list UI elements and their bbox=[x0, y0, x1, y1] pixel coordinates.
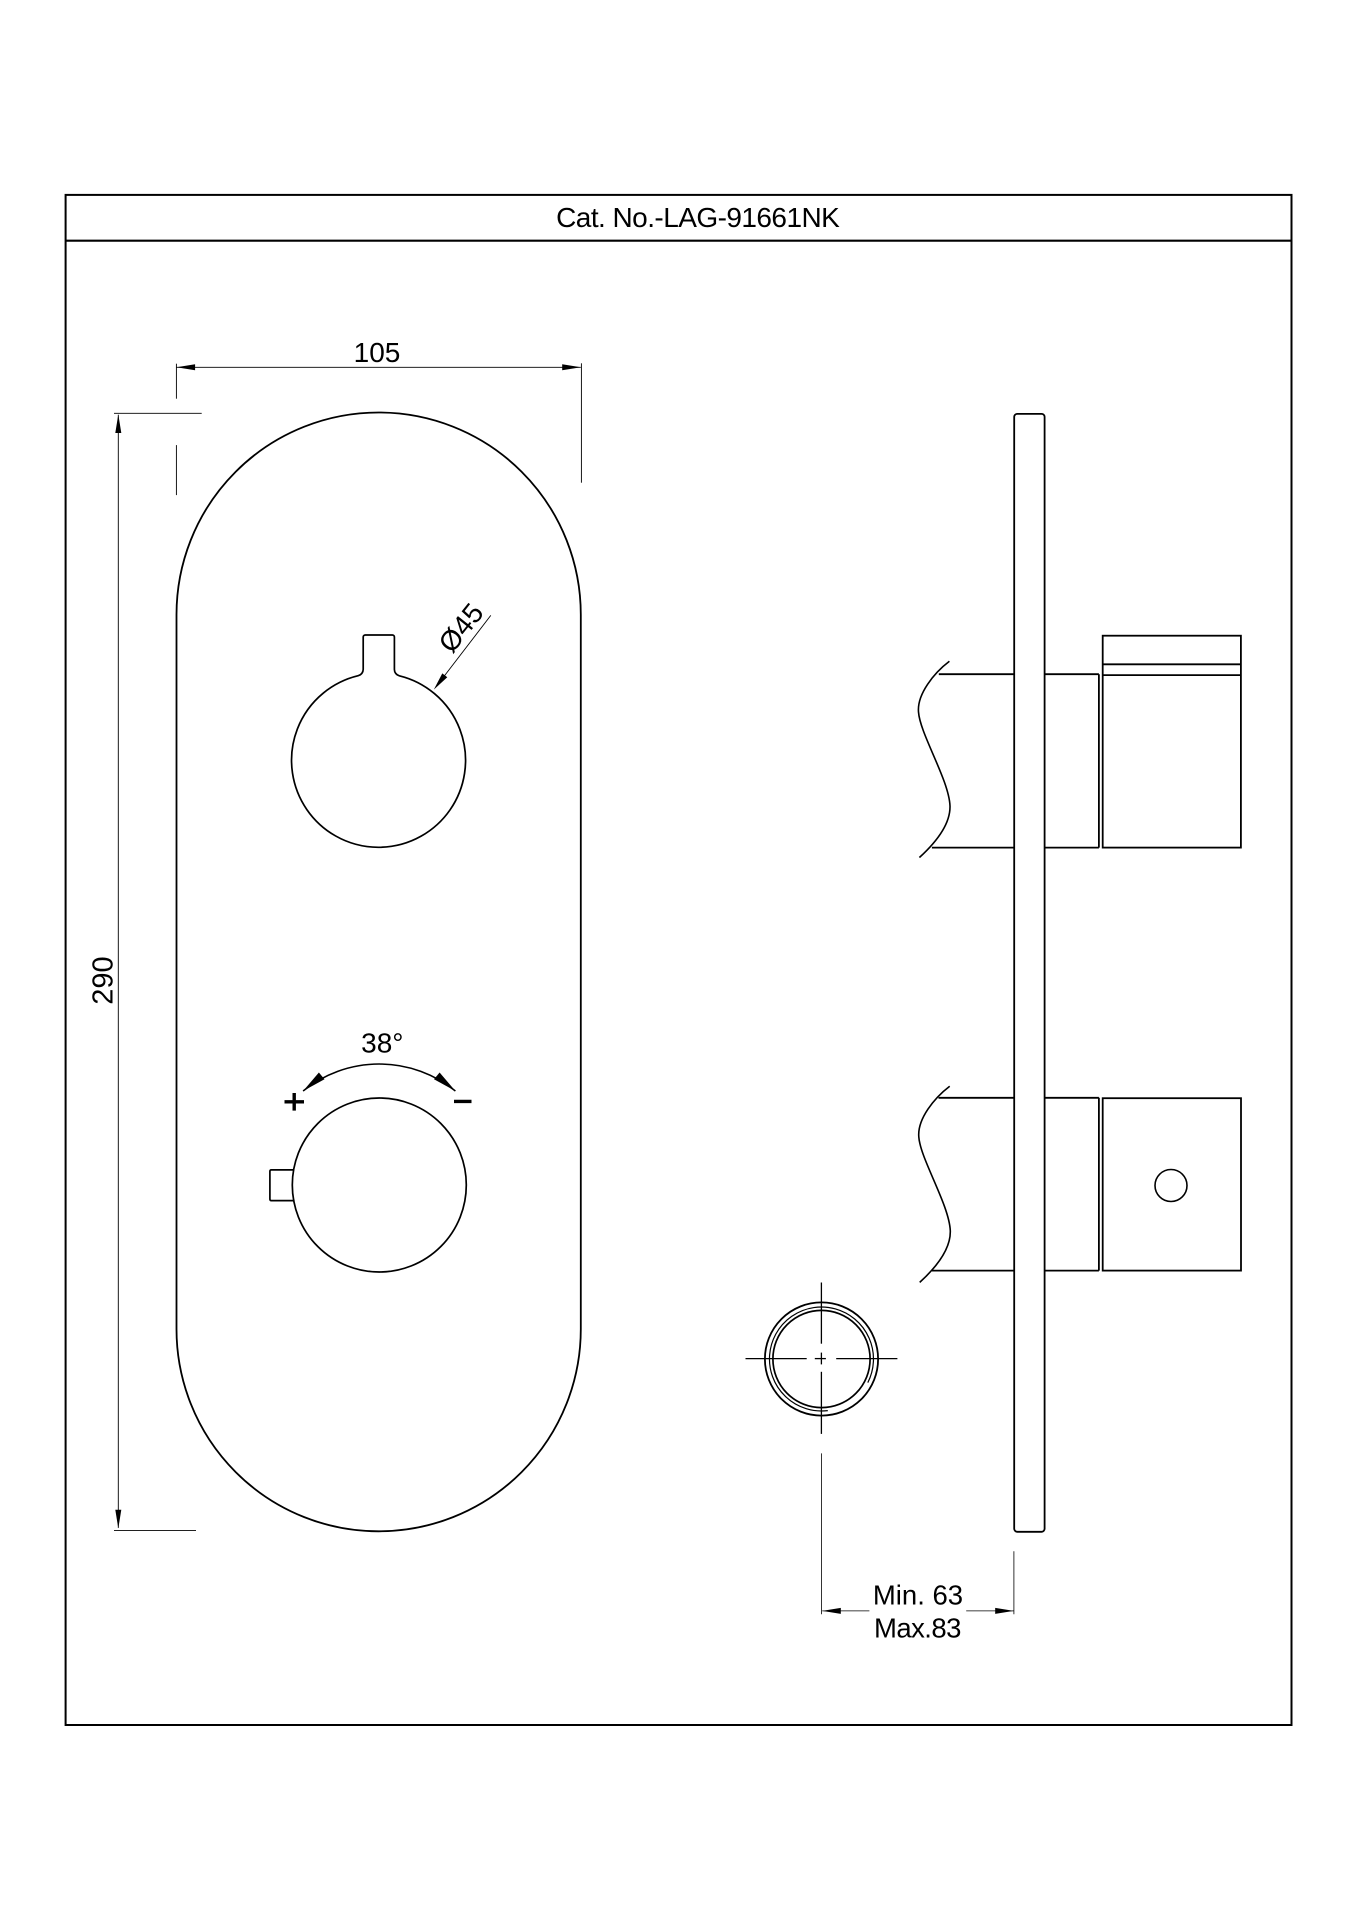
svg-text:Min. 63: Min. 63 bbox=[873, 1579, 963, 1610]
svg-text:Max.83: Max.83 bbox=[874, 1613, 961, 1644]
svg-text:38°: 38° bbox=[361, 1028, 403, 1059]
svg-text:105: 105 bbox=[354, 337, 401, 368]
svg-text:290: 290 bbox=[88, 956, 120, 1004]
svg-text:Cat. No.-LAG-91661NK: Cat. No.-LAG-91661NK bbox=[556, 202, 840, 233]
